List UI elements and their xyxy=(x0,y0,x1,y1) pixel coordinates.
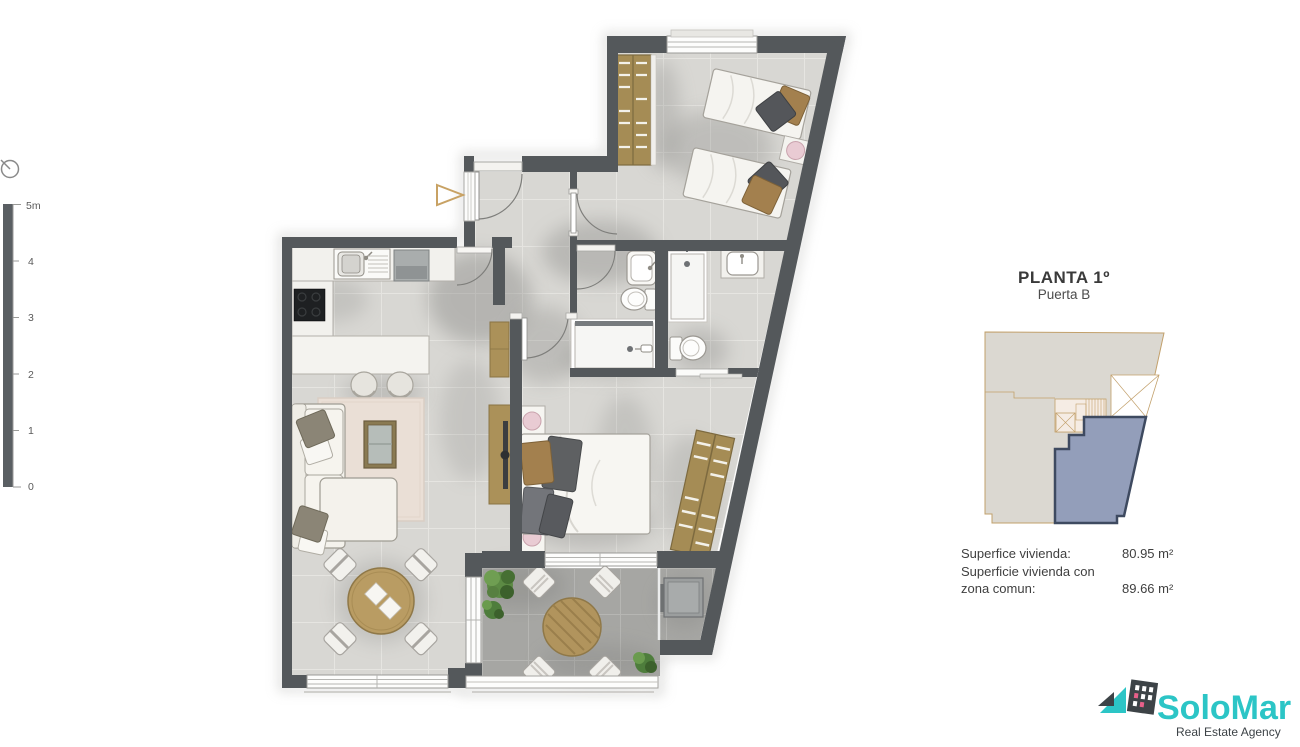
svg-text:Superficie vivienda con: Superficie vivienda con xyxy=(961,564,1095,579)
svg-text:4: 4 xyxy=(28,256,34,268)
svg-text:0: 0 xyxy=(28,481,34,493)
svg-text:1: 1 xyxy=(28,425,34,437)
svg-text:PLANTA 1º: PLANTA 1º xyxy=(1018,268,1110,287)
svg-text:SoloMar: SoloMar xyxy=(1157,689,1291,727)
svg-text:Puerta B: Puerta B xyxy=(1038,287,1091,302)
svg-text:zona comun:: zona comun: xyxy=(961,581,1035,596)
svg-text:89.66 m²: 89.66 m² xyxy=(1122,581,1174,596)
svg-text:3: 3 xyxy=(28,312,34,324)
svg-text:2: 2 xyxy=(28,369,34,381)
svg-text:Superfice vivienda:: Superfice vivienda: xyxy=(961,546,1071,561)
svg-text:5m: 5m xyxy=(26,200,41,212)
svg-text:Real Estate Agency: Real Estate Agency xyxy=(1176,725,1281,739)
svg-text:80.95 m²: 80.95 m² xyxy=(1122,546,1174,561)
